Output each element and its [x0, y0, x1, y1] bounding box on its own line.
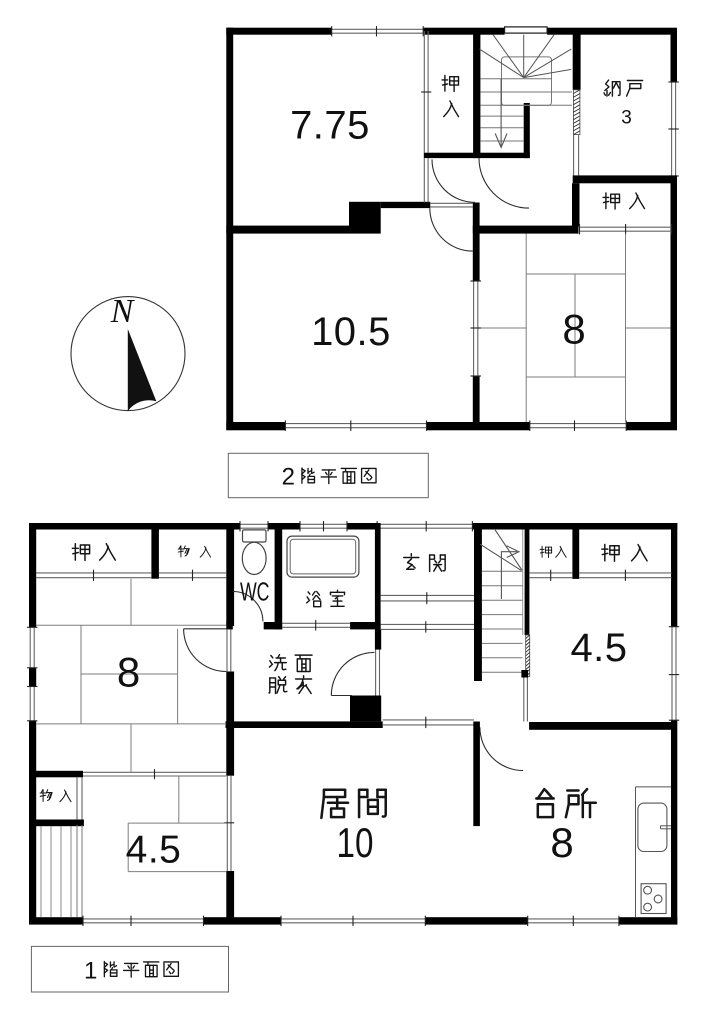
svg-text:7.75: 7.75 [290, 103, 370, 147]
svg-text:4.5: 4.5 [126, 829, 182, 872]
svg-text:4.5: 4.5 [570, 626, 627, 670]
svg-text:2: 2 [282, 464, 295, 491]
svg-text:WC: WC [240, 577, 270, 607]
svg-text:8: 8 [550, 819, 573, 866]
svg-text:8: 8 [562, 306, 585, 353]
svg-text:1: 1 [84, 957, 97, 984]
svg-text:10.5: 10.5 [311, 310, 391, 354]
svg-text:3: 3 [621, 108, 632, 129]
svg-text:N: N [110, 293, 136, 330]
svg-text:10: 10 [337, 819, 374, 866]
svg-text:8: 8 [117, 649, 140, 696]
